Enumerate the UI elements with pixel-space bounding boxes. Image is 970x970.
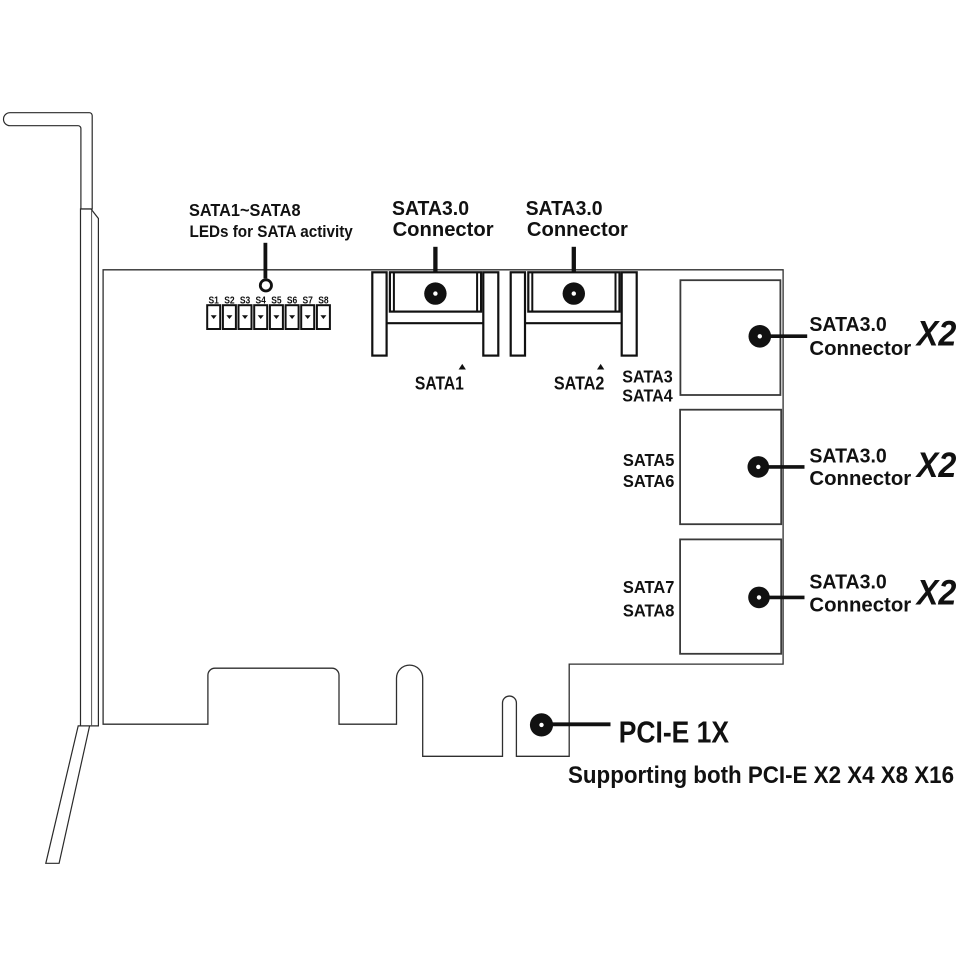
svg-text:SATA5: SATA5 [623,450,675,470]
svg-text:SATA3.0: SATA3.0 [809,571,886,593]
svg-text:SATA3.0: SATA3.0 [526,198,603,220]
svg-text:SATA6: SATA6 [623,471,675,491]
svg-text:Connector: Connector [527,219,628,241]
svg-text:PCI-E 1X: PCI-E 1X [619,715,730,750]
svg-text:SATA2: SATA2 [554,373,605,394]
svg-text:Connector: Connector [809,594,911,616]
svg-text:SATA8: SATA8 [623,601,675,621]
svg-text:Supporting both PCI-E X2 X4 X8: Supporting both PCI-E X2 X4 X8 X16 [568,762,954,789]
svg-text:SATA4: SATA4 [622,385,673,405]
svg-text:SATA3.0: SATA3.0 [809,314,886,336]
svg-text:X2: X2 [915,445,957,485]
svg-text:SATA1: SATA1 [415,373,464,394]
svg-text:X2: X2 [915,314,957,354]
svg-text:SATA3.0: SATA3.0 [392,198,469,220]
svg-text:LEDs for SATA activity: LEDs for SATA activity [190,222,354,241]
svg-text:Connector: Connector [809,338,911,360]
svg-text:SATA3.0: SATA3.0 [809,445,886,467]
svg-text:SATA1~SATA8: SATA1~SATA8 [189,200,301,220]
svg-text:X2: X2 [915,573,957,613]
svg-text:SATA7: SATA7 [623,577,675,597]
svg-text:Connector: Connector [393,219,494,241]
svg-text:SATA3: SATA3 [622,366,672,386]
svg-text:Connector: Connector [809,468,911,490]
